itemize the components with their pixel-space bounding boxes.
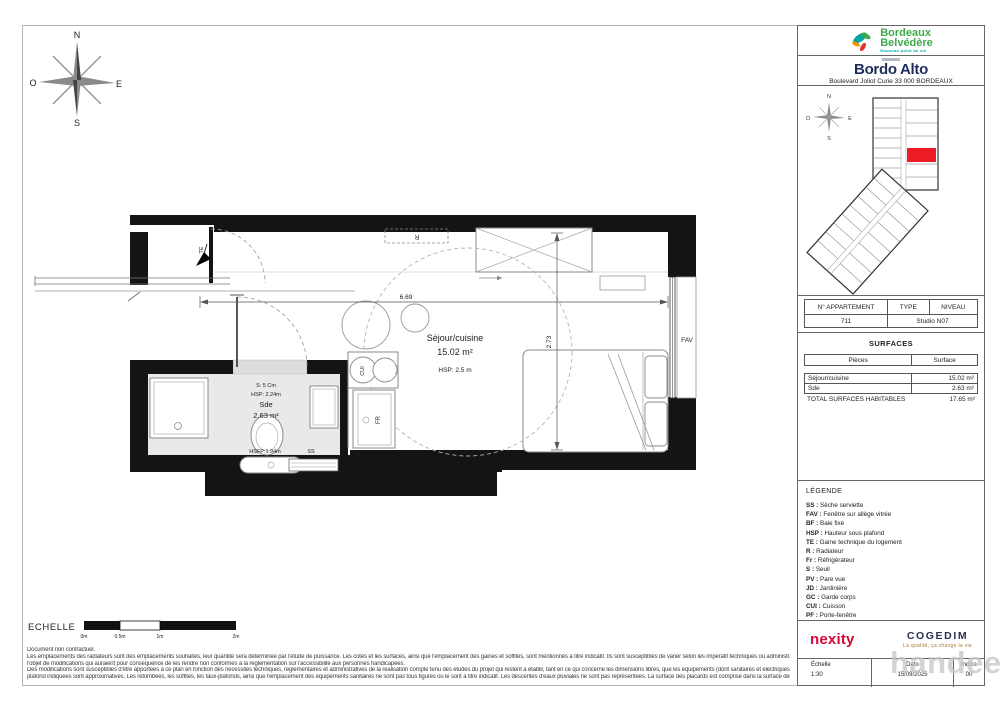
scale-bar: ECHELLE 0m 0.5m 1m 2m: [0, 0, 300, 650]
legend-item: CUICuisson: [806, 602, 976, 611]
legend-item: RRadiateur: [806, 547, 976, 556]
legend-item: HSPHauteur sous plafond: [806, 529, 976, 538]
radiator-label: R: [414, 233, 419, 240]
apartment-info: N° APPARTEMENT TYPE NIVEAU 711 Studio N0…: [798, 296, 984, 333]
footer-scale-value: 1:30: [811, 672, 871, 678]
apt-type-level: Studio N07: [888, 315, 978, 328]
table-row: Sde 2.63 m²: [805, 384, 978, 394]
surface-row-value: 2.63 m²: [912, 384, 978, 394]
fr-label: FR: [376, 415, 382, 424]
apt-number: 711: [805, 315, 888, 328]
surface-row-name: Séjour/cuisine: [805, 374, 912, 384]
watermark: handee: [890, 645, 1000, 681]
surface-row-value: 15.02 m²: [912, 374, 978, 384]
cogedim-name: COGEDIM: [903, 630, 972, 642]
scale-tick-0: 0m: [81, 634, 88, 640]
bed: [523, 350, 668, 452]
disclaimer-line: Document non contractuel.: [27, 647, 790, 654]
brand-bordeaux-belvedere: Bordeaux Belvédère Nouveau point de vie: [798, 26, 984, 56]
brand1-tagline: Nouveau point de vie: [880, 48, 933, 53]
wardrobe: [476, 228, 592, 281]
legend-item: JDJardinière: [806, 584, 976, 593]
residence-address: Boulevard Joliot Curie 33 000 BORDEAUX: [798, 78, 984, 85]
legend-item: BFBaie fixe: [806, 519, 976, 528]
surfaces-section: SURFACES Pièces Surface Séjour/cuisine 1…: [798, 333, 984, 481]
mini-compass-s: S: [827, 136, 831, 142]
legend-item: PVPare vue: [806, 575, 976, 584]
mini-compass: N S O E: [806, 94, 852, 142]
apartment-table: N° APPARTEMENT TYPE NIVEAU 711 Studio N0…: [804, 299, 978, 328]
disclaimer-line: Des modifications sont susceptibles d'êt…: [27, 667, 790, 674]
fridge: [353, 390, 395, 448]
disclaimer-line: Les emplacements des radiateurs sont des…: [27, 654, 790, 661]
sejour-name: Séjour/cuisine: [427, 333, 484, 343]
bordo-alto-mark: [882, 58, 900, 61]
surfaces-rows: Séjour/cuisine 15.02 m² Sde 2.63 m²: [804, 373, 978, 394]
legend-item: FAVFenêtre sur allège vitrée: [806, 510, 976, 519]
building-locator: N S O E: [798, 86, 984, 296]
footer-scale-header: Échelle: [811, 662, 871, 668]
apt-header-type: TYPE: [888, 300, 930, 315]
mini-compass-n: N: [827, 94, 831, 100]
legend-item: GCGarde corps: [806, 593, 976, 602]
sejour-hsp: HSP: 2.5 m: [438, 367, 471, 374]
ss-label: SS: [307, 449, 315, 455]
cui-label: CUI: [360, 366, 366, 376]
title-block-panel: Bordeaux Belvédère Nouveau point de vie …: [797, 25, 985, 686]
mini-compass-e: E: [848, 116, 852, 122]
nexity-logo: nexity: [810, 631, 855, 648]
bordeaux-belvedere-logo-icon: [849, 28, 875, 54]
shelf: [600, 276, 645, 290]
fav-label: FAV: [681, 337, 693, 344]
surfaces-col-pieces: Pièces: [805, 355, 912, 366]
round-table: [342, 301, 390, 349]
surfaces-title: SURFACES: [804, 339, 978, 348]
bath-cabinet: [310, 386, 338, 428]
building-footprint: [807, 98, 938, 294]
brand1-line2: Belvédère: [880, 38, 933, 48]
chair: [401, 304, 429, 332]
legend-item: SSSèche serviette: [806, 501, 976, 510]
footer-scale: Échelle 1:30: [798, 659, 872, 687]
mini-compass-o: O: [806, 116, 811, 122]
disclaimer: Document non contractuel. Les emplacemen…: [27, 647, 790, 681]
brand-bordo-alto: Bordo Alto Boulevard Joliot Curie 33 000…: [798, 56, 984, 86]
surfaces-header: Pièces Surface: [804, 354, 978, 366]
residence-name: Bordo Alto: [798, 62, 984, 77]
floor-plan-sheet: { "page": { "watermark": "handee" }, "co…: [0, 0, 1000, 707]
legend-item: TEGaine technique du logement: [806, 538, 976, 547]
highlighted-unit: [907, 148, 936, 162]
scale-tick-3: 2m: [233, 634, 240, 640]
disclaimer-line: plafond indiquées sont approximatives. L…: [27, 674, 790, 681]
apt-header-number: N° APPARTEMENT: [805, 300, 888, 315]
legend-title: LÉGENDE: [806, 488, 976, 495]
scale-tick-2: 1m: [157, 634, 164, 640]
surface-row-name: Sde: [805, 384, 912, 394]
building-locator-plan: N S O E: [798, 86, 984, 295]
surfaces-total-value: 17.65 m²: [949, 396, 975, 403]
surfaces-col-surface: Surface: [912, 355, 978, 366]
dim-height-label: 2.73: [546, 335, 553, 348]
surfaces-total-label: TOTAL SURFACES HABITABLES: [807, 396, 905, 403]
dim-width-label: 6.69: [400, 294, 413, 301]
apt-header-level: NIVEAU: [929, 300, 977, 315]
sejour-area: 15.02 m²: [437, 347, 473, 357]
legend-section: LÉGENDE SSSèche serviette FAVFenêtre sur…: [798, 481, 984, 621]
surfaces-total-row: TOTAL SURFACES HABITABLES 17.65 m²: [804, 394, 978, 403]
disclaimer-line: l'objet de modifications qui auraient po…: [27, 661, 790, 668]
table-row: Séjour/cuisine 15.02 m²: [805, 374, 978, 384]
legend-item: SSeuil: [806, 565, 976, 574]
scale-bar-label: ECHELLE: [28, 622, 76, 633]
legend-item: PFPorte-fenêtre: [806, 611, 976, 620]
scale-tick-1: 0.5m: [114, 634, 125, 640]
legend-item: FrRéfrigérateur: [806, 556, 976, 565]
